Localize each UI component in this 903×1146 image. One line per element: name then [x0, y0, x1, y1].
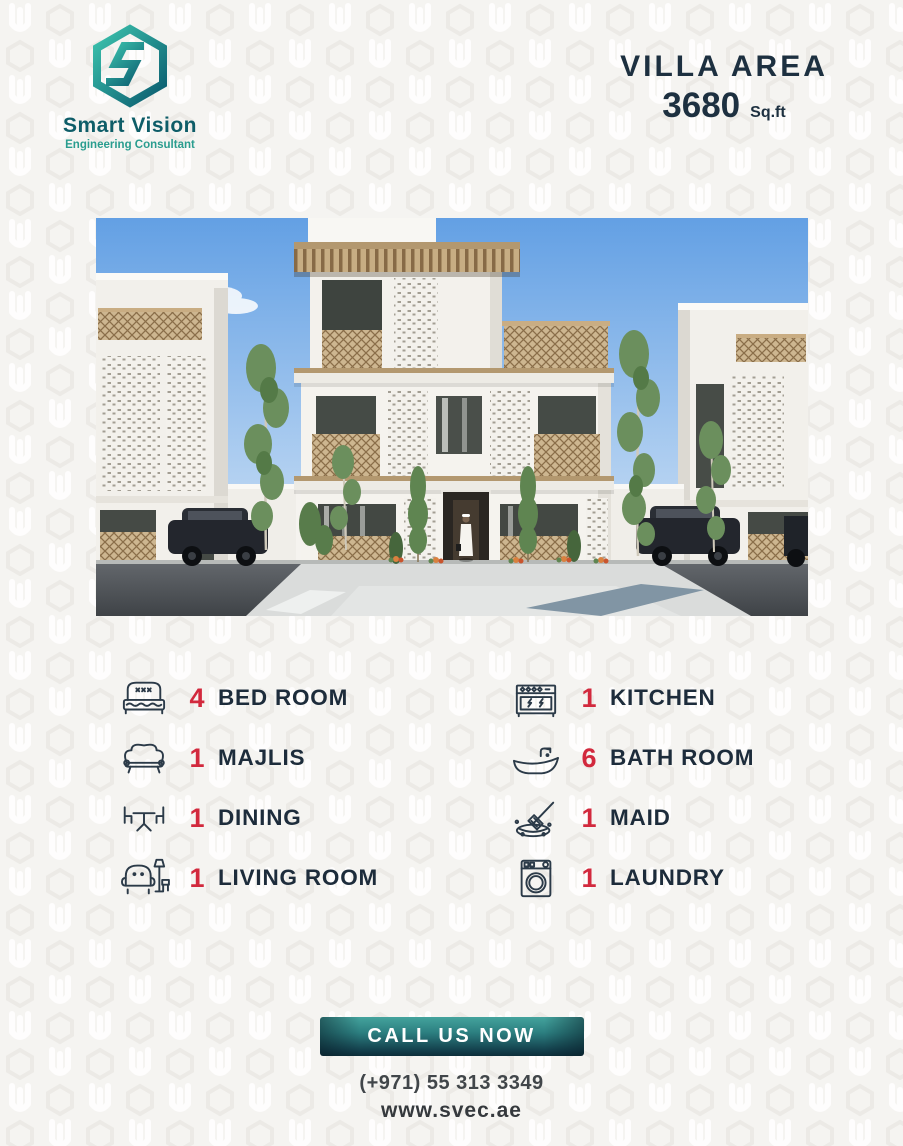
villa-area-block: VILLA AREA 3680 Sq.ft: [589, 50, 859, 126]
feature-bath-room: 6 BATH ROOM: [504, 728, 896, 788]
feature-maid: 1 MAID: [504, 788, 896, 848]
stove-icon: [504, 675, 568, 721]
feature-label: BATH ROOM: [610, 745, 754, 771]
villa-photo: [96, 218, 808, 616]
feature-label: LIVING ROOM: [218, 865, 378, 891]
website-url: www.svec.ae: [0, 1099, 903, 1123]
villa-area-unit: Sq.ft: [750, 104, 786, 122]
dining-table-icon: [112, 796, 176, 840]
feature-label: BED ROOM: [218, 685, 348, 711]
brand-block: Smart Vision Engineering Consultant: [38, 24, 222, 151]
phone-number: (+971) 55 313 3349: [0, 1072, 903, 1095]
feature-kitchen: 1 KITCHEN: [504, 668, 896, 728]
feature-label: KITCHEN: [610, 685, 716, 711]
brand-tagline: Engineering Consultant: [38, 139, 222, 151]
washing-machine-icon: [504, 855, 568, 901]
feature-bed-room: 4 BED ROOM: [112, 668, 504, 728]
feature-label: MAID: [610, 805, 671, 831]
feature-count: 1: [580, 863, 598, 894]
sofa-icon: [112, 736, 176, 780]
feature-living-room: 1 LIVING ROOM: [112, 848, 504, 908]
call-us-now-button[interactable]: CALL US NOW: [320, 1017, 584, 1056]
feature-count: 1: [580, 683, 598, 714]
feature-count: 6: [580, 743, 598, 774]
feature-count: 4: [188, 683, 206, 714]
feature-count: 1: [580, 803, 598, 834]
bed-icon: [112, 675, 176, 721]
features-grid: 4 BED ROOM 1 MAJLIS: [112, 668, 896, 908]
feature-label: DINING: [218, 805, 302, 831]
bathtub-icon: [504, 737, 568, 779]
feature-count: 1: [188, 743, 206, 774]
villa-area-title: VILLA AREA: [589, 50, 859, 84]
flyer-page: Smart Vision Engineering Consultant VILL…: [0, 0, 903, 1146]
feature-label: MAJLIS: [218, 745, 305, 771]
armchair-lamp-icon: [112, 855, 176, 901]
feature-count: 1: [188, 863, 206, 894]
cleaning-icon: [504, 796, 568, 840]
feature-count: 1: [188, 803, 206, 834]
feature-majlis: 1 MAJLIS: [112, 728, 504, 788]
feature-laundry: 1 LAUNDRY: [504, 848, 896, 908]
villa-area-value: 3680: [662, 86, 740, 126]
feature-label: LAUNDRY: [610, 865, 725, 891]
feature-dining: 1 DINING: [112, 788, 504, 848]
smart-vision-logo-icon: [78, 24, 182, 108]
brand-name: Smart Vision: [38, 114, 222, 138]
